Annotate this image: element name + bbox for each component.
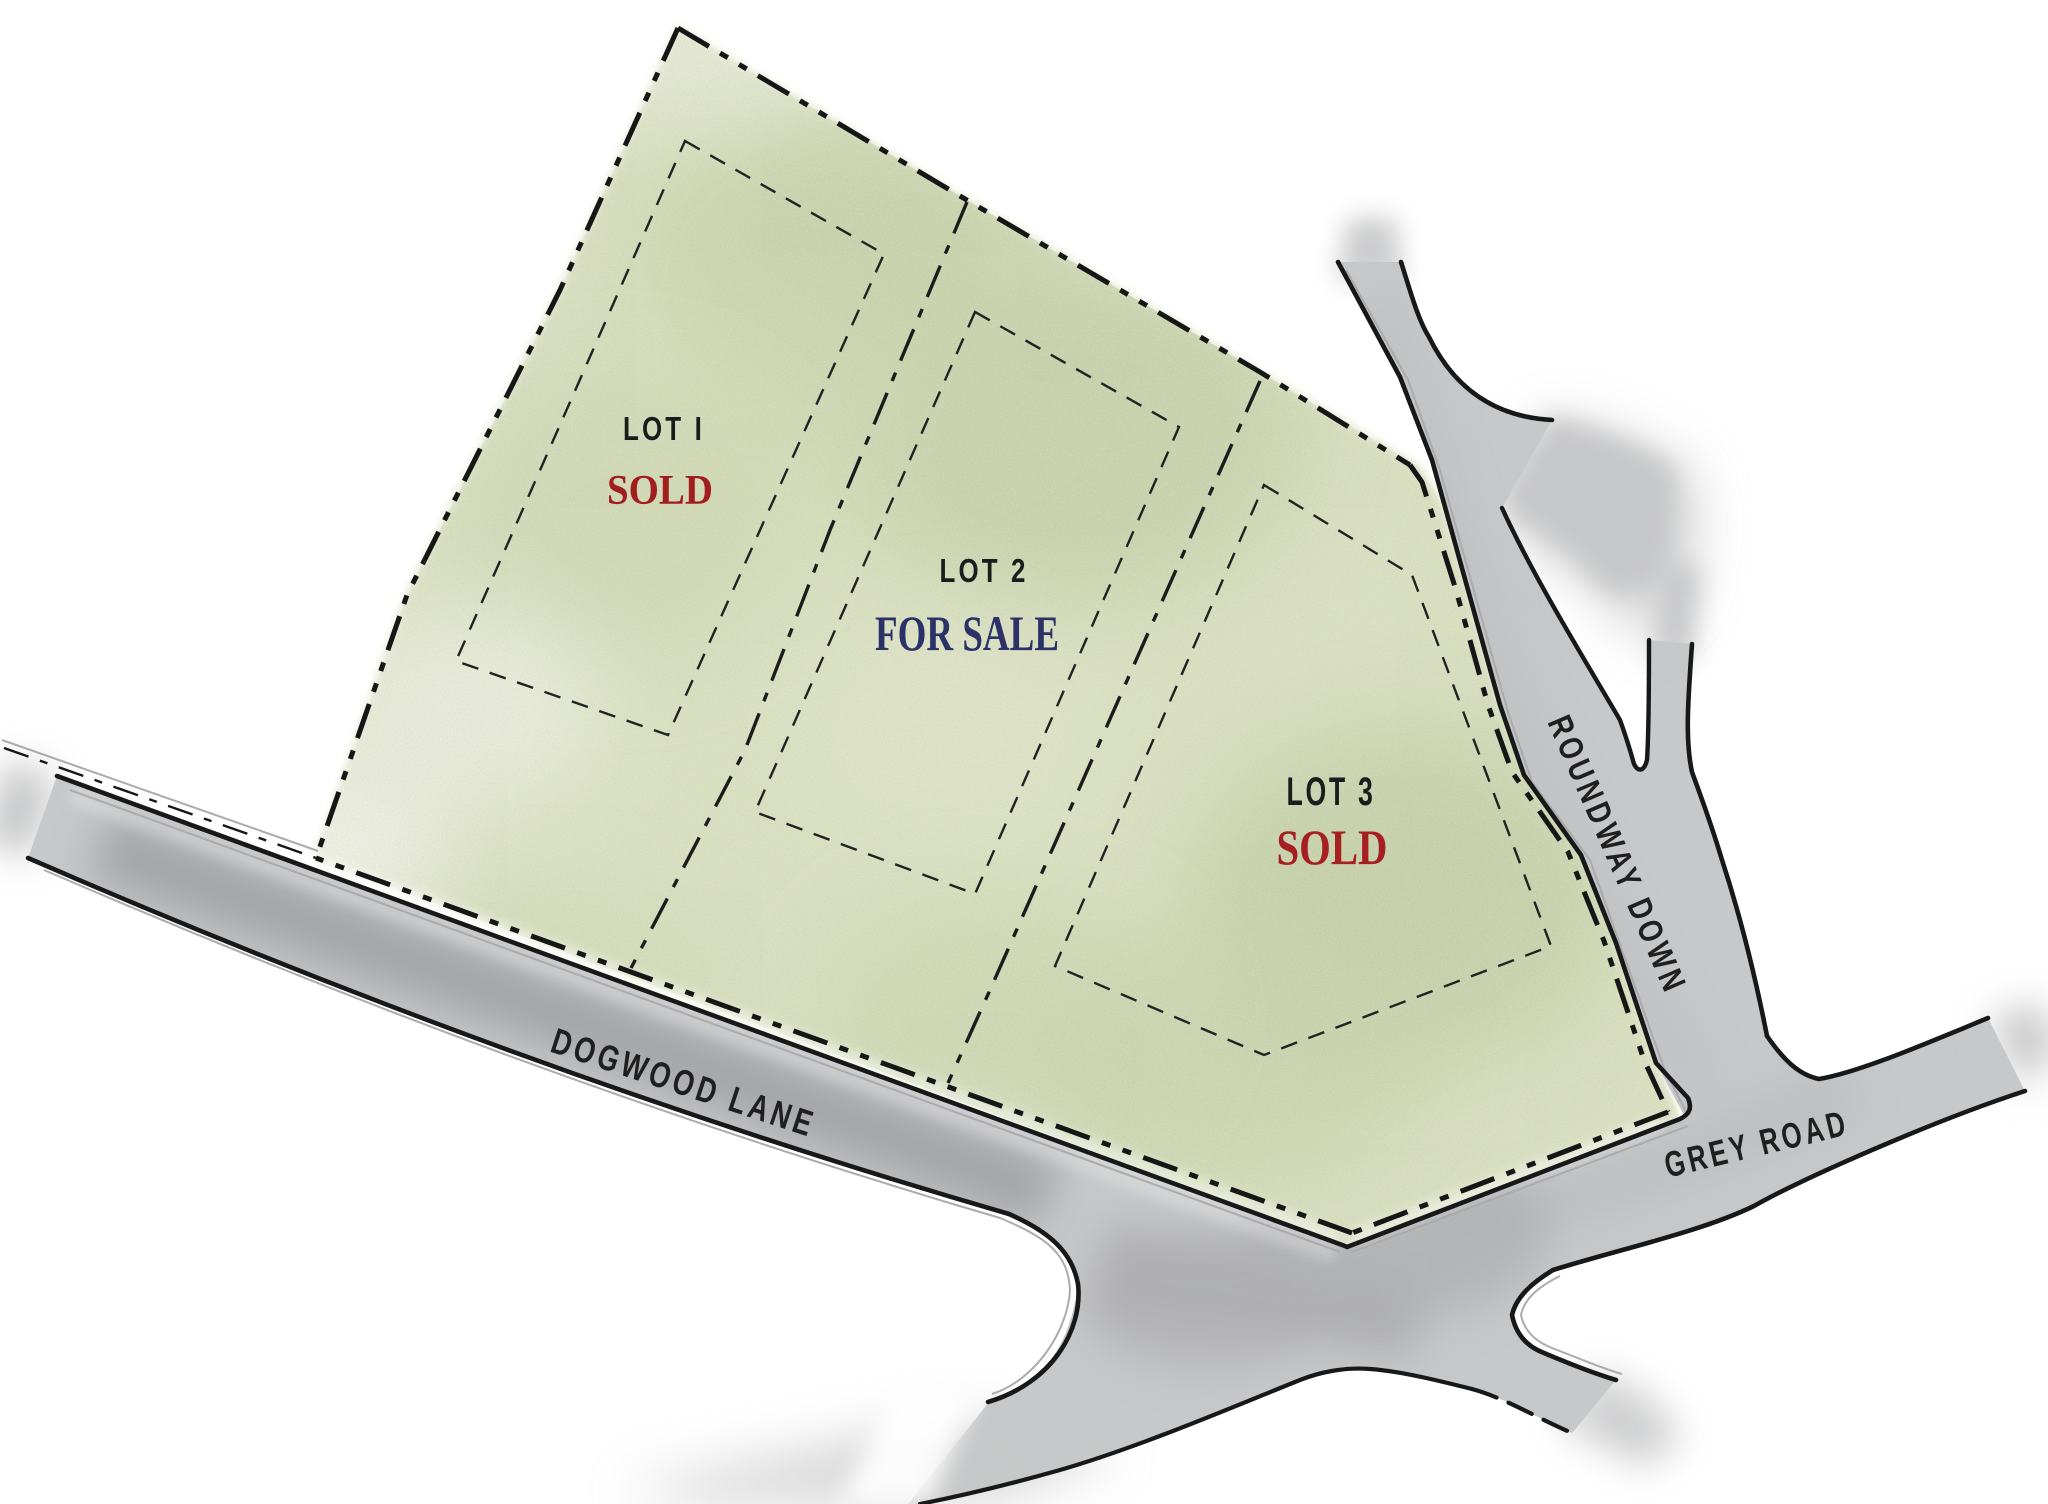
svg-text:LOT 2: LOT 2 [940,552,1029,589]
svg-text:FOR SALE: FOR SALE [875,605,1059,661]
svg-text:LOT 3: LOT 3 [1287,770,1376,814]
svg-text:SOLD: SOLD [607,468,713,514]
svg-text:LOT I: LOT I [623,410,705,447]
svg-text:SOLD: SOLD [1277,819,1388,875]
